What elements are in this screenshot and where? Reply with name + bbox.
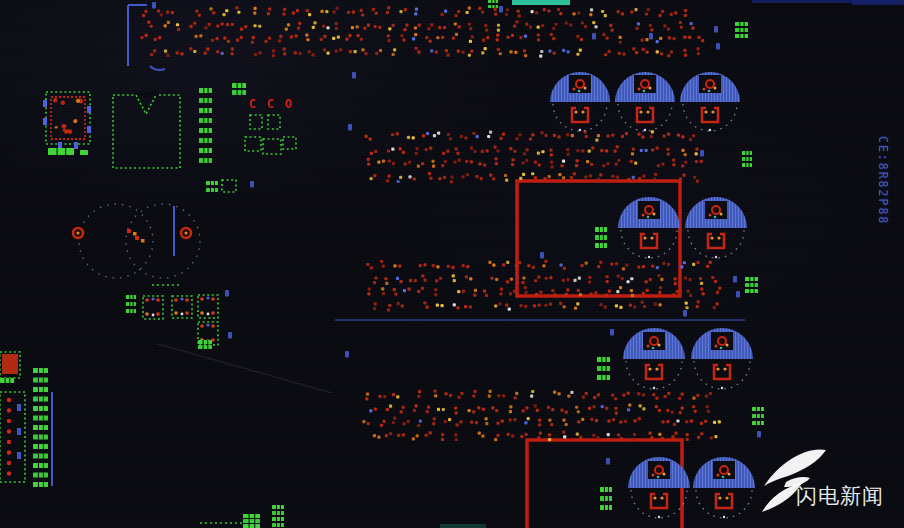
component-outline — [250, 115, 262, 129]
connector-pads — [597, 357, 610, 380]
connector-pads — [243, 514, 260, 528]
pcb-cad-screen-photo: CCO CE:8R82P88 闪电新闻 — [0, 0, 904, 528]
svg-text:C: C — [267, 97, 274, 111]
connector-pads — [80, 150, 88, 155]
connector-pads — [199, 88, 212, 163]
component-outline — [263, 139, 281, 154]
connector-pads — [33, 368, 48, 487]
connector-pads — [48, 148, 74, 155]
capacitor-footprint — [550, 72, 610, 131]
connector-pads — [735, 22, 748, 38]
connector-pads — [232, 83, 246, 95]
component-outline — [143, 296, 163, 319]
watermark-text: 闪电新闻 — [796, 482, 884, 510]
red-pad-glyphs: CCO — [249, 97, 292, 111]
component-outline — [268, 115, 280, 129]
blue-specks — [152, 2, 761, 465]
capacitor-footprint — [685, 197, 747, 258]
component-outline — [198, 295, 218, 318]
connector-pads — [272, 505, 284, 527]
component-outline — [0, 392, 25, 482]
component-outline — [283, 137, 296, 149]
connector-pads — [745, 277, 758, 293]
connector-pads — [600, 487, 612, 510]
red-component-body — [2, 354, 18, 374]
connector-pads — [595, 227, 607, 248]
svg-text:C: C — [249, 97, 256, 111]
connector-pads — [752, 407, 764, 425]
connector-pads — [126, 295, 136, 313]
component-outline — [222, 180, 236, 192]
screen-scratch — [158, 344, 332, 393]
component-outline — [46, 92, 90, 144]
solder-pad-band — [140, 6, 704, 58]
capacitor-footprint — [618, 197, 680, 258]
dashed-circle-footprints — [73, 204, 200, 278]
capacitor-footprint — [691, 328, 753, 389]
capacitor-footprint — [615, 72, 675, 131]
connector-pads — [0, 378, 14, 383]
solder-pad-band — [365, 130, 703, 183]
connector-pads — [206, 181, 218, 192]
component-outline — [172, 296, 192, 318]
connector-pads — [742, 151, 752, 167]
connector-pads — [488, 0, 498, 8]
capacitor-footprint — [623, 328, 685, 389]
svg-text:O: O — [285, 97, 292, 111]
ic-red-inner — [43, 97, 91, 149]
capacitor-footprint — [680, 72, 740, 131]
solder-pad-band — [362, 390, 721, 442]
component-outline — [245, 137, 261, 151]
solder-pad-band — [366, 260, 721, 312]
ic-outline-notched — [113, 92, 180, 168]
watermark: 闪电新闻 — [746, 438, 904, 528]
board-revision-label: CE:8R82P88 — [876, 136, 890, 225]
